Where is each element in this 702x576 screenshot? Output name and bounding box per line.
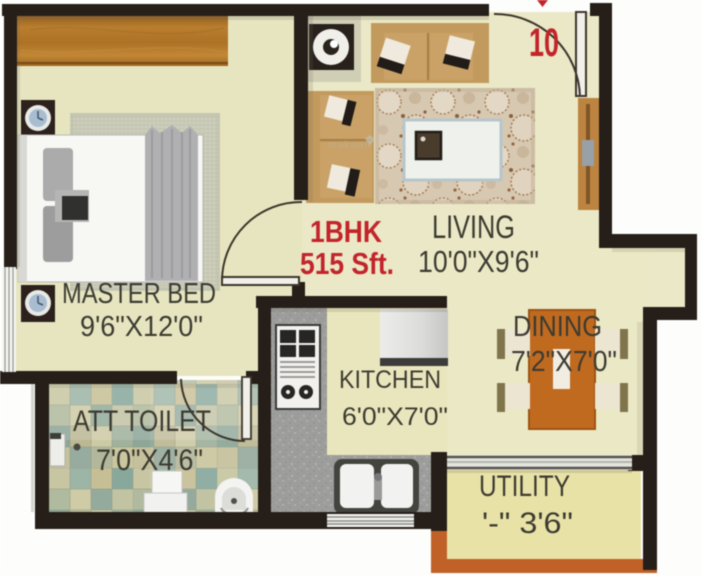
svg-text:DINING: DINING xyxy=(513,311,602,343)
svg-text:7'2"X7'0": 7'2"X7'0" xyxy=(511,346,617,378)
svg-text:515 Sft.: 515 Sft. xyxy=(300,246,394,281)
svg-text:ATT TOILET: ATT TOILET xyxy=(73,405,211,438)
svg-text:9'6"X12'0": 9'6"X12'0" xyxy=(80,311,203,343)
svg-text:MASTER BED: MASTER BED xyxy=(62,278,216,310)
svg-text:LIVING: LIVING xyxy=(432,209,515,245)
svg-text:1BHK: 1BHK xyxy=(310,214,383,249)
svg-text:makaan: makaan xyxy=(328,139,371,151)
svg-text:7'0"X4'6": 7'0"X4'6" xyxy=(96,444,203,477)
svg-text:UTILITY: UTILITY xyxy=(479,470,570,503)
svg-text:'-" 3'6": '-" 3'6" xyxy=(482,507,573,540)
svg-text:10: 10 xyxy=(529,21,559,65)
svg-text:10'0"X9'6": 10'0"X9'6" xyxy=(418,244,539,279)
svg-text:6'0"X7'0": 6'0"X7'0" xyxy=(342,403,448,431)
svg-text:KITCHEN: KITCHEN xyxy=(339,366,441,394)
